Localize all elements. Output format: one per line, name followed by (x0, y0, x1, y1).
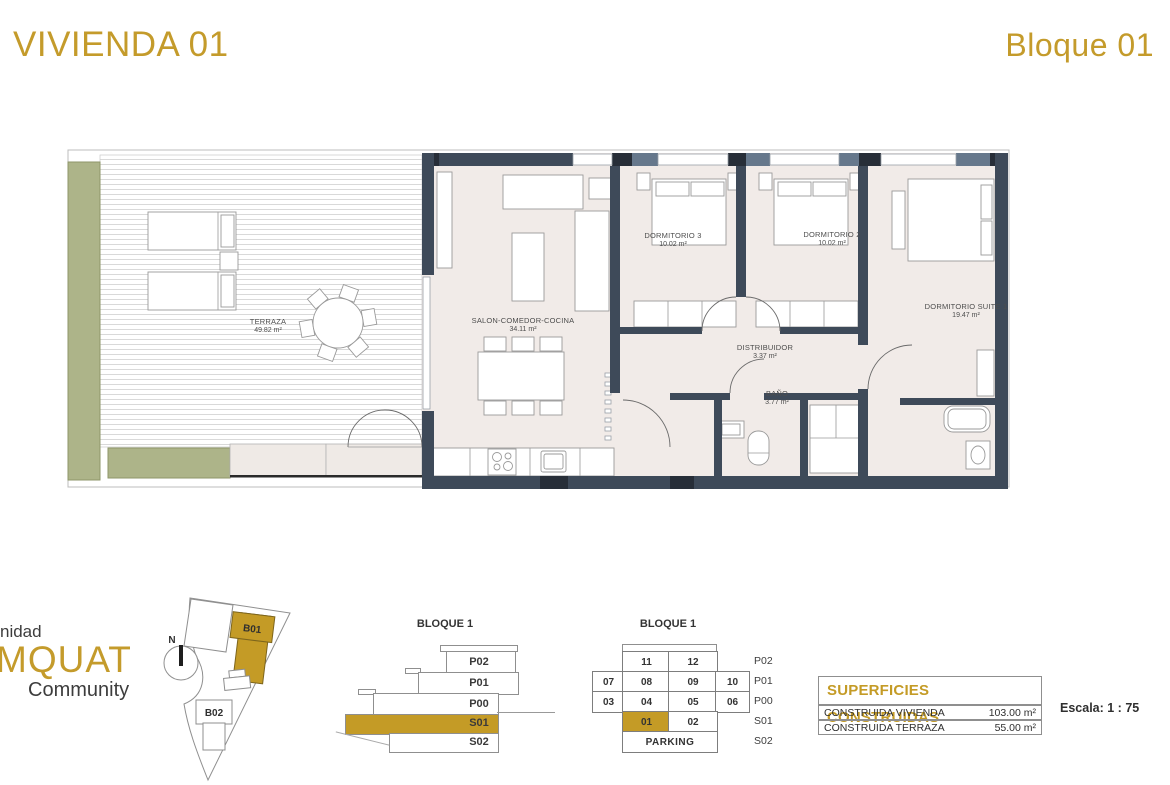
svg-text:B02: B02 (205, 708, 224, 719)
unit-08: 08 (622, 671, 671, 693)
room-label-bano: BAÑO3.77 m² (765, 390, 789, 407)
elevation-title: BLOQUE 1 (385, 618, 505, 630)
parking-cell: PARKING (622, 731, 718, 753)
room-label-distribuidor: DISTRIBUIDOR3.37 m² (737, 344, 793, 361)
unit-05: 05 (668, 691, 718, 713)
kitchen-counter (432, 448, 614, 476)
logo-line3: Community (28, 679, 129, 702)
elevation-diagram: BLOQUE 1 P02 P01 P00 S01 S02 (345, 614, 560, 764)
logo-wordmark: MQUAT (0, 639, 132, 681)
neighbor-building (184, 599, 233, 652)
north-label: N (168, 635, 175, 646)
grid-row-label: S01 (754, 715, 773, 727)
room-label-suite: DORMITORIO SUITE 119.47 m² (925, 303, 1008, 320)
grid-row-label: S02 (754, 735, 773, 747)
unit-02: 02 (668, 711, 718, 733)
site-plan: N B01 B02 (150, 592, 335, 785)
sofa (503, 175, 583, 209)
unit-grid-title: BLOQUE 1 (608, 618, 728, 630)
unit-07: 07 (592, 671, 625, 693)
svg-text:B01: B01 (242, 623, 262, 636)
room-label-dorm2: DORMITORIO 210.02 m² (803, 231, 860, 248)
unit-03: 03 (592, 691, 625, 713)
unit-12: 12 (668, 651, 718, 673)
tv-unit (437, 172, 452, 268)
surfaces-row-vivienda: CONSTRUIDA VIVIENDA 103.00 m² (818, 705, 1042, 720)
planter-bottom (108, 448, 230, 478)
unit-09: 09 (668, 671, 718, 693)
unit-06: 06 (715, 691, 750, 713)
plan-sheet: VIVIENDA 01 Bloque 01 (0, 0, 1170, 785)
surfaces-title: SUPERFICIES CONSTRUIDAS (818, 676, 1042, 705)
block-title: Bloque 01 (1005, 27, 1154, 64)
coffee-table (512, 233, 544, 301)
scale-note: Escala: 1 : 75 (1060, 701, 1139, 715)
surface-value: 55.00 m² (995, 722, 1036, 734)
room-label-salon: SALON-COMEDOR-COCINA34.11 m² (472, 317, 575, 334)
room-label-terraza: TERRAZA49.82 m² (250, 318, 286, 335)
grid-row-label: P01 (754, 675, 773, 687)
dining-set (478, 337, 564, 415)
surfaces-row-terraza: CONSTRUIDA TERRAZA 55.00 m² (818, 720, 1042, 735)
planter-left (68, 162, 100, 480)
unit-01-highlight: 01 (622, 711, 671, 733)
surface-label: CONSTRUIDA VIVIENDA (824, 707, 945, 719)
surface-value: 103.00 m² (989, 707, 1036, 719)
room-label-dorm3: DORMITORIO 310.02 m² (644, 232, 701, 249)
page-title: VIVIENDA 01 (13, 25, 229, 65)
unit-04: 04 (622, 691, 671, 713)
surfaces-table: SUPERFICIES CONSTRUIDAS CONSTRUIDA VIVIE… (818, 676, 1058, 738)
stove (488, 449, 516, 475)
toilet (748, 431, 769, 465)
surface-label: CONSTRUIDA TERRAZA (824, 722, 945, 734)
unit-grid: BLOQUE 1 11 12 07 08 09 10 03 04 05 06 0… (580, 614, 795, 764)
unit-11: 11 (622, 651, 671, 673)
chaise (575, 211, 609, 311)
grid-row-label: P02 (754, 655, 773, 667)
desk (977, 350, 994, 396)
grid-row-label: P00 (754, 695, 773, 707)
unit-10: 10 (715, 671, 750, 693)
